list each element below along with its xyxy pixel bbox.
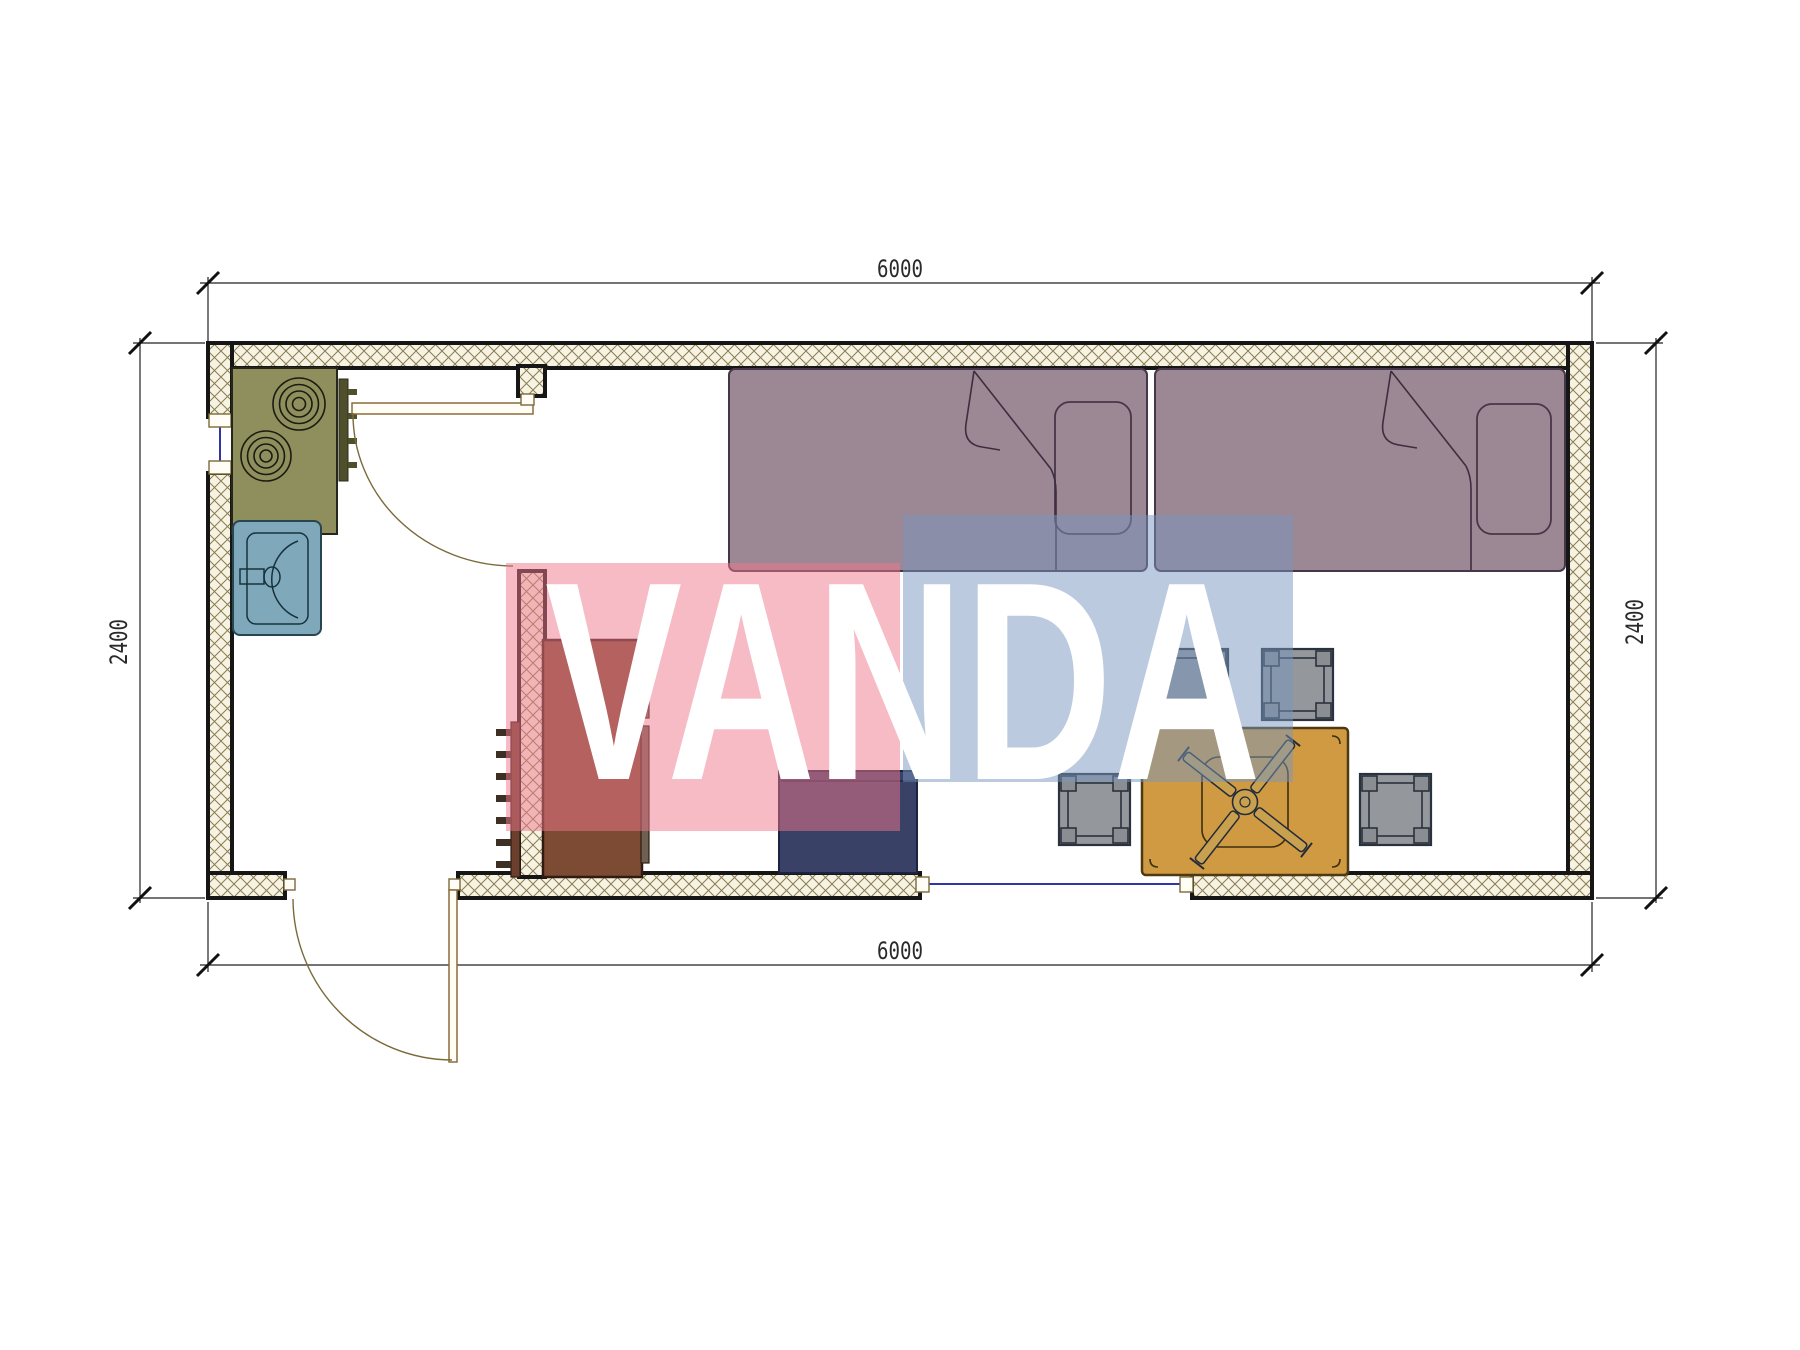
pillow: [1055, 402, 1131, 534]
bottom-wall-window: [916, 877, 1193, 892]
dimension-bottom: 6000: [197, 902, 1603, 976]
dimension-left: 2400: [105, 332, 205, 909]
watermark: VANDA: [506, 515, 1293, 839]
door-jamb-niche: [518, 366, 545, 396]
dimension-right: 2400: [1596, 332, 1667, 909]
watermark-text: VANDA: [545, 523, 1261, 839]
left-wall-window: [209, 414, 231, 474]
entry-door: [284, 879, 460, 1062]
door-hinge-post: [339, 379, 348, 481]
stool: [1360, 774, 1431, 845]
door-leaf: [449, 890, 457, 1062]
pillow: [1477, 404, 1551, 534]
floor-plan-canvas: 6000 6000 2400 2400: [0, 0, 1800, 1350]
floor-plan-page: 6000 6000 2400 2400: [0, 0, 1800, 1350]
door-swing-arc: [353, 413, 513, 566]
dim-right-label: 2400: [1621, 599, 1649, 645]
interior-door: [339, 379, 534, 566]
door-swing-arc: [293, 899, 452, 1060]
dimension-top: 6000: [197, 255, 1603, 341]
door-leaf: [352, 403, 533, 414]
dim-bottom-label: 6000: [877, 937, 923, 965]
sink: [233, 521, 321, 635]
stove-cooktop: [232, 368, 337, 534]
dim-left-label: 2400: [105, 619, 133, 665]
dim-top-label: 6000: [877, 255, 923, 283]
